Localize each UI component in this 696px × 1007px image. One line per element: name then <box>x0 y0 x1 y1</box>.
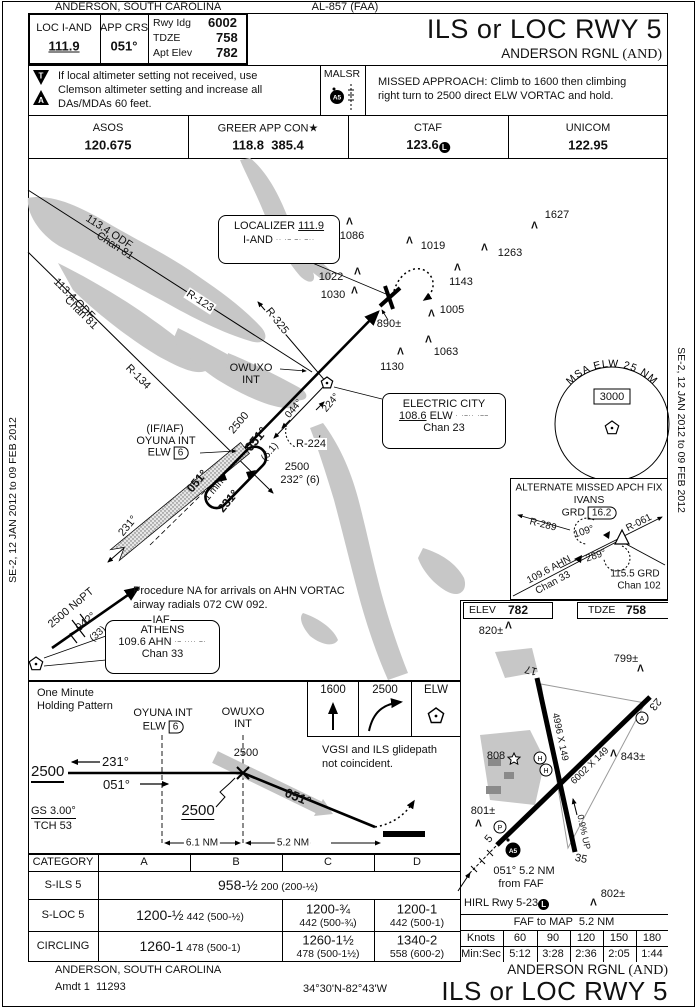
circling-d-main: 1340-2 <box>397 933 437 948</box>
obstacle-icon: Λ <box>346 217 352 228</box>
loc-frequency: 111.9 <box>48 39 79 54</box>
localizer-callout: LOCALIZER 111.9 I-AND ·· ·– –· –·· <box>218 215 340 264</box>
helipad-letter: H <box>543 768 548 775</box>
obstacle-icon: Λ <box>610 749 616 760</box>
obstacle-icon: Λ <box>531 221 537 232</box>
faf-zigzag-leader <box>216 778 235 807</box>
circ-ab-paren: 478 (500-1) <box>186 942 240 954</box>
ctaf-label: CTAF <box>414 122 442 134</box>
sloc-d-main: 1200-1 <box>397 902 437 917</box>
circling-c-main: 1260-1½ <box>302 933 353 948</box>
obstacle-icon: Λ <box>454 263 460 274</box>
approach-plate: SE-2, 12 JAN 2012 to 09 FEB 2012 SE-2, 1… <box>0 0 696 1007</box>
athens-callout: ATHENS 109.6 AHN ·– ···· –· Chan 33 <box>105 620 220 674</box>
divider <box>188 115 189 158</box>
amaf-fix-name: IVANS <box>574 494 605 506</box>
ec-chan: Chan 23 <box>383 422 505 434</box>
sils-paren: 200 (200-½) <box>261 881 318 893</box>
helipad-letter: H <box>537 756 542 763</box>
header-city: ANDERSON, SOUTH CAROLINA <box>55 1 221 13</box>
profile-missed-curve <box>375 801 414 827</box>
msa-circle: MSA ELW 25 NM <box>555 358 669 481</box>
sketch-obstacle: 801± <box>471 805 495 817</box>
divider <box>503 930 504 962</box>
profile-owuxo-int: INT <box>234 718 252 730</box>
amaf-title: ALTERNATE MISSED APCH FIX <box>516 483 663 494</box>
obstacle-label: 1627 <box>545 209 569 221</box>
owuxo-int-label: INT <box>242 374 260 386</box>
sketch-elev-value: 782 <box>508 603 528 617</box>
alternate-tri-letter: A <box>38 96 44 105</box>
minsec-value: 2:05 <box>608 948 629 960</box>
footer-city: ANDERSON, SOUTH CAROLINA <box>55 964 221 976</box>
divider <box>365 65 366 115</box>
msa-altitude: 3000 <box>600 391 624 403</box>
divider <box>282 853 283 871</box>
obstacle-label: 1019 <box>421 240 445 252</box>
malsr-a5-label: A5 <box>509 848 518 855</box>
procedure-note-1: Procedure NA for arrivals on AHN VORTAC <box>133 585 345 597</box>
localizer-morse: ·· ·– –· –·· <box>276 237 315 243</box>
turn-arrow-icon <box>369 702 401 731</box>
takeoff-triangle-icon: T <box>32 69 50 86</box>
missed-approach-text-2: right turn to 2500 direct ELW VORTAC and… <box>378 90 613 102</box>
papi-letter: P <box>498 825 503 832</box>
divider <box>374 899 375 962</box>
obstacle-icon: Λ <box>481 243 487 254</box>
altimeter-note-2: Clemson altimeter setting and increase a… <box>58 84 262 96</box>
obstacle-icon: Λ <box>397 347 403 358</box>
airport-id: (AND) <box>622 47 662 62</box>
divider <box>28 899 460 900</box>
hirl-text: HIRL Rwy 5-23 <box>464 897 538 909</box>
divider <box>603 930 604 962</box>
missed-approach-hook <box>394 269 433 300</box>
min-header-d: D <box>413 856 421 868</box>
unicom-label: UNICOM <box>566 122 611 134</box>
divider <box>570 930 571 962</box>
circ-ab-main: 1260-1 <box>140 938 184 954</box>
app-crs-value: 051° <box>111 39 138 54</box>
obstacle-label: 1086 <box>340 230 364 242</box>
edition-left: SE-2, 12 JAN 2012 to 09 FEB 2012 <box>7 417 19 583</box>
sketch-tdze-label: TDZE <box>588 604 615 616</box>
divider <box>282 899 283 962</box>
electric-city-callout: ELECTRIC CITY 108.6 ELW · ·–·· ·–– Chan … <box>382 393 506 449</box>
chart-al-number: AL-857 (FAA) <box>312 1 379 13</box>
sketch-obstacle: 808 <box>487 750 505 762</box>
oyuna-dme: ELW 6 <box>148 447 189 460</box>
footer-coords: 34°30'N-82°43'W <box>303 983 387 995</box>
divider <box>100 13 101 65</box>
athens-chan: Chan 33 <box>106 648 219 660</box>
sketch-obstacle: 820± <box>479 625 503 637</box>
divider <box>28 853 460 855</box>
airport-name-text: ANDERSON RGNL <box>501 46 618 61</box>
vgsi-note-1: VGSI and ILS glidepath <box>322 744 437 756</box>
amaf-grd: 115.5 GRD <box>610 569 659 580</box>
profile-faf-altitude: 2500 <box>234 747 258 759</box>
procedure-note-2: airway radials 072 CW 092. <box>133 599 268 611</box>
asos-label: ASOS <box>93 122 124 134</box>
airport-symbol <box>380 286 400 309</box>
r224-label: R-224 <box>295 438 327 450</box>
obstacle-icon: Λ <box>505 621 511 632</box>
knots-value: 120 <box>577 932 595 944</box>
rwy-ldg-label: Rwy Idg <box>153 17 191 29</box>
athens-freq: 109.6 <box>118 636 146 648</box>
obstacle-icon: Λ <box>475 819 481 830</box>
one-minute-label-1: One Minute <box>37 687 94 699</box>
obstacle-icon: Λ <box>637 664 643 675</box>
takeoff-tri-letter: T <box>39 72 44 81</box>
minsec-value: 5:12 <box>509 948 530 960</box>
glideslope-angle: GS 3.00° <box>31 805 76 819</box>
one-minute-label-2: Holding Pattern <box>37 700 113 712</box>
ctaf-freq: 123.6L <box>406 137 450 153</box>
divider <box>190 853 191 871</box>
divider <box>320 65 321 115</box>
svg-text:MSA ELW 25 NM: MSA ELW 25 NM <box>564 358 660 388</box>
ctaf-l-badge: L <box>439 142 450 153</box>
ec-ident: ELW <box>430 410 453 422</box>
sketch-tdze-value: 758 <box>626 603 646 617</box>
app-con-label: GREER APP CON★ <box>218 122 319 135</box>
ahn-vor-icon <box>29 657 42 670</box>
asos-freq: 120.675 <box>85 138 132 153</box>
obstacle-label: 1063 <box>434 346 458 358</box>
amaf-dme-box: 16.2 <box>588 507 616 520</box>
sloc-ab-minimums: 1200-½ 442 (500-½) <box>136 907 244 923</box>
oyuna-dme-box: 6 <box>174 447 189 460</box>
altimeter-note-1: If local altimeter setting not received,… <box>58 70 257 82</box>
circling-row-label: CIRCLING <box>37 940 90 952</box>
obstacle-icon: Λ <box>425 335 431 346</box>
knots-value: 150 <box>610 932 628 944</box>
sils-minimums: 958-½ 200 (200-½) <box>218 877 318 893</box>
app-con-freq: 118.8 385.4 <box>232 138 304 153</box>
obstacle-icon: Λ <box>351 286 357 297</box>
circling-c-paren: 478 (500-1½) <box>296 948 359 960</box>
rwy-ldg-value: 6002 <box>208 15 237 30</box>
hirl-note: HIRL Rwy 5-23L <box>464 897 549 910</box>
localizer-freq: 111.9 <box>298 220 324 232</box>
ctaf-value: 123.6 <box>406 137 439 152</box>
divider <box>28 931 460 932</box>
sketch-obstacle: 802± <box>601 888 625 900</box>
localizer-ident: I-AND <box>243 234 273 246</box>
obstacle-icon: Λ <box>354 267 360 278</box>
obstacle-label: 1022 <box>319 271 343 283</box>
stepdown-altitude: 2500 <box>284 461 310 473</box>
obstacle-label: 1130 <box>380 361 404 373</box>
divider <box>636 930 637 962</box>
sketch-obstacle: 843± <box>621 751 645 763</box>
athens-iaf-label: IAF <box>151 614 170 626</box>
divider <box>374 853 375 871</box>
sloc-c-paren: 442 (500-¾) <box>299 917 356 929</box>
minsec-label: Min:Sec <box>461 948 501 960</box>
divider <box>508 115 509 158</box>
min-header-c: C <box>324 856 332 868</box>
sils-row-label: S-ILS 5 <box>45 879 82 891</box>
tdze-label: TDZE <box>153 32 180 44</box>
edition-right: SE-2, 12 JAN 2012 to 09 FEB 2012 <box>675 347 687 513</box>
tdze-value: 758 <box>216 30 238 45</box>
ec-morse: · ·–·· ·–– <box>456 413 489 419</box>
divider <box>148 13 149 65</box>
obstacle-label: 890± <box>377 318 401 330</box>
faf-distance-note-1: 051° 5.2 NM <box>493 865 554 877</box>
amaf-grd-chan: Chan 102 <box>617 581 660 592</box>
oyuna-label: OYUNA INT <box>136 435 195 447</box>
sloc-d-paren: 442 (500-1) <box>390 917 444 929</box>
distance-6-1: 6.1 NM <box>184 838 220 849</box>
unicom-freq: 122.95 <box>568 138 608 153</box>
knots-value: 180 <box>643 932 661 944</box>
vgsi-note-2: not coincident. <box>322 758 393 770</box>
profile-oyuna: OYUNA INT <box>133 707 192 719</box>
sloc-ab-main: 1200-½ <box>136 907 183 923</box>
app-crs-label: APP CRS <box>100 22 148 34</box>
footer-airport-name: ANDERSON RGNL <box>507 962 624 977</box>
circling-ab-minimums: 1260-1 478 (500-1) <box>140 938 241 954</box>
min-header-category: CATEGORY <box>33 856 94 868</box>
malsr-label: MALSR <box>324 68 360 80</box>
profile-inbound-course: 051° <box>103 777 130 792</box>
sloc-row-label: S-LOC 5 <box>42 909 85 921</box>
obstacle-label: 1263 <box>498 247 522 259</box>
minsec-value: 2:36 <box>575 948 596 960</box>
amaf-dme: GRD 16.2 <box>562 507 617 520</box>
faf-arrow <box>458 873 470 891</box>
sketch-obstacle: 799± <box>614 653 638 665</box>
malsr-badge: A5 <box>333 95 342 102</box>
altimeter-note-3: DAs/MDAs 60 feet. <box>58 98 152 110</box>
distance-5-2: 5.2 NM <box>275 838 311 849</box>
alternate-triangle-icon: A <box>32 89 50 106</box>
sloc-c-main: 1200-¾ <box>306 902 350 917</box>
apt-elev-value: 782 <box>216 45 238 60</box>
profile-outbound-course: 231° <box>102 754 129 769</box>
missed-approach-text-1: MISSED APPROACH: Climb to 1600 then clim… <box>378 76 626 88</box>
if-iaf-label: (IF/IAF) <box>146 423 183 435</box>
min-header-a: A <box>140 856 147 868</box>
airport-name: ANDERSON RGNL (AND) <box>380 46 662 63</box>
obstacle-icon: Λ <box>428 309 434 320</box>
athens-ident: AHN <box>148 636 171 648</box>
minsec-value: 3:28 <box>542 948 563 960</box>
owuxo-leader <box>280 369 306 371</box>
divider <box>28 65 668 66</box>
ec-freq: 108.6 <box>399 410 427 422</box>
profile-faf-altitude-2: 2500 <box>181 802 214 820</box>
athens-box-leader <box>44 660 106 666</box>
loc-ident-label: LOC I-AND <box>36 22 92 34</box>
tch-value: TCH 53 <box>34 820 72 832</box>
knots-value: 90 <box>547 932 559 944</box>
page-title: ILS or LOC RWY 5 <box>380 14 662 45</box>
profile-runway-bar <box>383 831 425 837</box>
obstacle-label: 1030 <box>321 289 345 301</box>
footer-title: ILS or LOC RWY 5 <box>400 976 668 1007</box>
msa-arc-label: MSA ELW 25 NM <box>564 358 660 388</box>
divider <box>460 914 668 915</box>
malsr-icon: A5 <box>325 82 361 112</box>
obstacle-label: 1005 <box>440 304 464 316</box>
missed-icons <box>307 680 460 737</box>
profile-owuxo: OWUXO <box>222 706 265 718</box>
sloc-ab-paren: 442 (500-½) <box>187 911 244 923</box>
athens-morse: ·– ···· –· <box>175 639 207 645</box>
knots-value: 60 <box>514 932 526 944</box>
owuxo-label: OWUXO <box>230 362 273 374</box>
profile-level-altitude: 2500 <box>31 763 64 783</box>
footer-amdt: Amdt 1 11293 <box>55 981 126 993</box>
c044-arrow <box>282 420 290 428</box>
minsec-value: 1:44 <box>641 948 662 960</box>
divider <box>28 871 460 872</box>
ec-name: ELECTRIC CITY <box>383 398 505 410</box>
divider <box>537 930 538 962</box>
profile-oyuna-nav: ELW <box>143 721 166 733</box>
knots-label: Knots <box>467 932 495 944</box>
obstacle-label: 1143 <box>449 276 473 288</box>
circling-d-paren: 558 (600-2) <box>390 948 444 960</box>
localizer-word: LOCALIZER <box>234 220 295 232</box>
profile-oyuna-dme: ELW 6 <box>143 721 184 734</box>
faf-to-map: FAF to MAP 5.2 NM <box>514 916 615 928</box>
beacon-letter: A <box>640 716 645 723</box>
hirl-l-badge: L <box>538 899 549 910</box>
obstacle-icon: Λ <box>590 898 596 909</box>
sketch-elev-label: ELEV <box>469 604 496 616</box>
profile-oyuna-dme-box: 6 <box>169 721 184 734</box>
obstacle-icon: Λ <box>406 236 412 247</box>
apt-elev-label: Apt Elev <box>153 47 192 59</box>
sils-main: 958-½ <box>218 877 258 893</box>
oyuna-nav: ELW <box>148 447 171 459</box>
faf-distance-note-2: from FAF <box>498 878 543 890</box>
divider <box>348 115 349 158</box>
divider <box>98 853 99 962</box>
stepdown-course: 232° (6) <box>279 474 320 486</box>
elw-pentagon-icon <box>428 708 443 723</box>
runway-35-label: 35 <box>574 852 588 866</box>
min-header-b: B <box>232 856 239 868</box>
amaf-nav: GRD <box>562 507 585 519</box>
